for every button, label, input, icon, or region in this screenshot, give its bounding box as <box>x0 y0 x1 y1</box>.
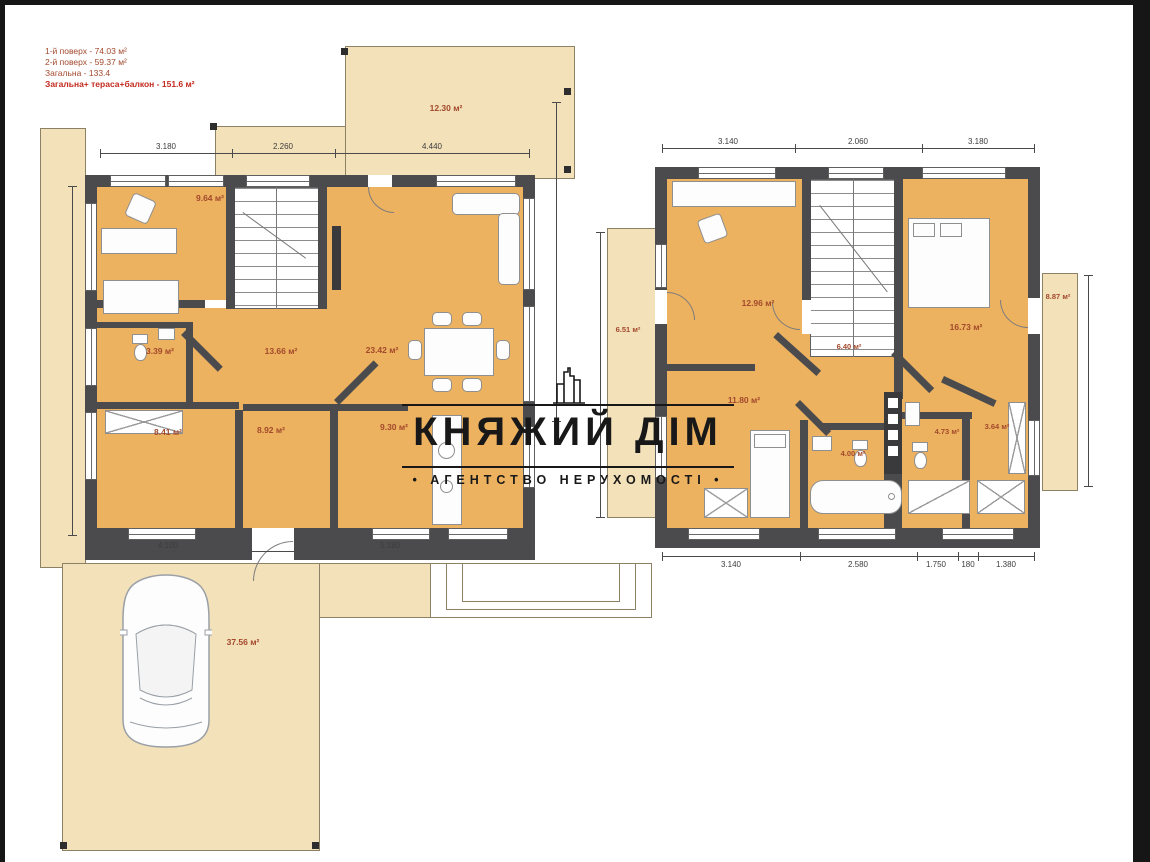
room-label-room-a: 8.41 м² <box>154 427 182 437</box>
dim-label: 4.440 <box>422 142 442 151</box>
dim-label: 4.100 <box>158 541 178 550</box>
sofa-corner <box>498 213 520 285</box>
window <box>828 167 884 179</box>
sink <box>905 402 920 426</box>
dimension-line <box>100 153 530 154</box>
building-logo-icon <box>551 366 587 404</box>
staircase <box>233 187 321 309</box>
toilet-tank <box>132 334 148 344</box>
photo-border-top <box>0 0 1150 5</box>
closet-box <box>1008 402 1026 474</box>
wardrobe <box>704 488 748 518</box>
entry-steps <box>462 563 620 602</box>
window <box>942 528 1014 540</box>
chair <box>432 312 452 326</box>
room-label-hall: 13.66 м² <box>265 346 298 356</box>
dim-tick <box>662 144 663 153</box>
shaft-cell <box>888 430 898 440</box>
interior-wall <box>330 404 338 528</box>
room-label-living: 23.42 м² <box>366 345 399 355</box>
bed-single <box>103 280 179 314</box>
floorplan-sheet: 1-й поверх - 74.03 м² 2-й поверх - 59.37… <box>0 0 1150 862</box>
dim-tick <box>529 149 530 158</box>
dim-label: 2.260 <box>273 142 293 151</box>
interior-wall <box>235 410 243 528</box>
interior-wall <box>226 187 235 309</box>
stair-stringer <box>853 179 854 357</box>
photo-border-right <box>1133 0 1150 862</box>
photo-border-left <box>0 0 5 862</box>
side-porch <box>40 128 86 568</box>
dim-label: 5.180 <box>380 541 400 550</box>
room-label-bedroom-right: 16.73 м² <box>950 322 983 332</box>
dim-label: 2.060 <box>848 137 868 146</box>
wardrobe <box>672 181 796 207</box>
dim-tick <box>662 552 663 561</box>
dimension-line <box>662 148 1035 149</box>
dim-tick <box>529 547 530 556</box>
dimension-line <box>662 556 1035 557</box>
watermark-rule-top <box>402 404 734 406</box>
chair <box>462 378 482 392</box>
sink <box>158 328 175 340</box>
window <box>85 412 97 480</box>
interior-wall <box>243 404 408 411</box>
balcony-door-opening <box>655 290 667 324</box>
room-label-terrace: 12.30 м² <box>430 103 463 113</box>
desk <box>101 228 177 254</box>
dimension-line <box>100 551 530 552</box>
window <box>85 328 97 386</box>
window <box>372 528 430 540</box>
corner-marker <box>564 88 571 95</box>
window <box>128 528 196 540</box>
tv-unit <box>332 226 341 290</box>
interior-wall <box>318 187 327 309</box>
corner-marker <box>564 166 571 173</box>
corner-marker <box>312 842 319 849</box>
chair <box>496 340 510 360</box>
dim-tick <box>68 535 77 536</box>
dim-tick <box>100 547 101 556</box>
summary-total-with-terrace: Загальна+ тераса+балкон - 151.6 м² <box>45 79 195 90</box>
room-label-driveway: 37.56 м² <box>227 637 260 647</box>
chair <box>432 378 452 392</box>
area-summary-block: 1-й поверх - 74.03 м² 2-й поверх - 59.37… <box>45 46 195 90</box>
balcony-right <box>1042 273 1078 491</box>
sink <box>812 436 832 451</box>
toilet-bowl <box>914 452 927 469</box>
floor2-base-wall <box>655 540 1040 548</box>
pillow <box>754 434 786 448</box>
window <box>655 244 667 288</box>
corner-marker <box>210 123 217 130</box>
window <box>110 175 166 187</box>
sofa <box>452 193 520 215</box>
summary-total: Загальна - 133.4 <box>45 68 195 79</box>
closet-box <box>977 480 1025 514</box>
window <box>448 528 508 540</box>
dim-tick <box>1084 486 1093 487</box>
shaft-cell <box>888 398 898 408</box>
dim-label: 3.140 <box>721 560 741 569</box>
dim-tick <box>237 547 238 556</box>
corner-marker <box>60 842 67 849</box>
room-label-wc: 4.73 м² <box>935 427 960 436</box>
window <box>523 306 535 402</box>
chair <box>462 312 482 326</box>
dim-label: 2.580 <box>848 560 868 569</box>
floor1-base-wall <box>85 540 535 560</box>
staircase <box>810 179 898 357</box>
toilet-tank <box>912 442 928 452</box>
stair-stringer <box>276 187 277 309</box>
shower-tray <box>908 480 970 514</box>
room-label-bedroom-left: 12.96 м² <box>742 298 775 308</box>
bath-faucet <box>888 493 895 500</box>
corner-marker <box>341 48 348 55</box>
dimension-line-vertical <box>72 186 73 536</box>
room-label-room-b: 8.92 м² <box>257 425 285 435</box>
watermark-rule-bottom <box>402 466 734 468</box>
room-label-bathroom: 4.00 м² <box>841 449 866 458</box>
window <box>922 167 1006 179</box>
dim-tick <box>335 149 336 158</box>
window <box>85 203 97 291</box>
room-label-closet: 3.64 м² <box>985 422 1010 431</box>
dim-label: 180 <box>961 560 974 569</box>
dimension-line-vertical <box>1088 275 1089 487</box>
dim-label: 1.750 <box>926 560 946 569</box>
dining-table <box>424 328 494 376</box>
dim-tick <box>922 144 923 153</box>
room-label-study: 9.64 м² <box>196 193 224 203</box>
dim-tick <box>958 552 959 561</box>
door-opening <box>802 300 811 334</box>
pillow <box>913 223 935 237</box>
dim-tick <box>1084 275 1093 276</box>
window <box>688 528 760 540</box>
dim-tick <box>1034 552 1035 561</box>
interior-wall <box>667 364 755 371</box>
car-top-view <box>120 572 212 750</box>
window <box>698 167 776 179</box>
window <box>436 175 516 187</box>
window <box>818 528 896 540</box>
room-label-balcony-right: 8.87 м² <box>1046 292 1071 301</box>
interior-wall <box>800 420 808 528</box>
porch-bottom <box>319 563 431 618</box>
chair <box>408 340 422 360</box>
summary-floor1: 1-й поверх - 74.03 м² <box>45 46 195 57</box>
dim-tick <box>978 552 979 561</box>
dim-tick <box>68 186 77 187</box>
shaft-cell <box>888 414 898 424</box>
dim-tick <box>795 144 796 153</box>
dim-tick <box>1034 144 1035 153</box>
balcony-door-opening <box>1028 298 1040 334</box>
dim-label: 3.180 <box>968 137 988 146</box>
room-label-balcony-left: 6.51 м² <box>616 325 641 334</box>
interior-wall <box>97 402 239 409</box>
room-label-hall: 6.40 м² <box>837 342 862 351</box>
room-label-wc: 3.39 м² <box>146 346 174 356</box>
dim-tick <box>596 517 605 518</box>
dim-tick <box>917 552 918 561</box>
interior-wall <box>97 322 189 328</box>
dim-tick <box>596 232 605 233</box>
pillow <box>940 223 962 237</box>
watermark-title: КНЯЖИЙ ДІМ <box>402 408 734 456</box>
dim-tick <box>232 149 233 158</box>
watermark-subtitle: • АГЕНТСТВО НЕРУХОМОСТІ • <box>402 473 734 487</box>
window <box>1028 420 1040 476</box>
window <box>246 175 310 187</box>
window <box>523 198 535 290</box>
summary-floor2: 2-й поверх - 59.37 м² <box>45 57 195 68</box>
terrace-door-opening <box>368 175 392 187</box>
shaft-cell <box>888 446 898 456</box>
dim-label: 3.180 <box>156 142 176 151</box>
dim-tick <box>100 149 101 158</box>
dim-tick <box>552 102 561 103</box>
door-opening <box>205 300 226 308</box>
dim-tick <box>800 552 801 561</box>
dim-label: 3.140 <box>718 137 738 146</box>
dim-label: 1.380 <box>996 560 1016 569</box>
window <box>168 175 224 187</box>
